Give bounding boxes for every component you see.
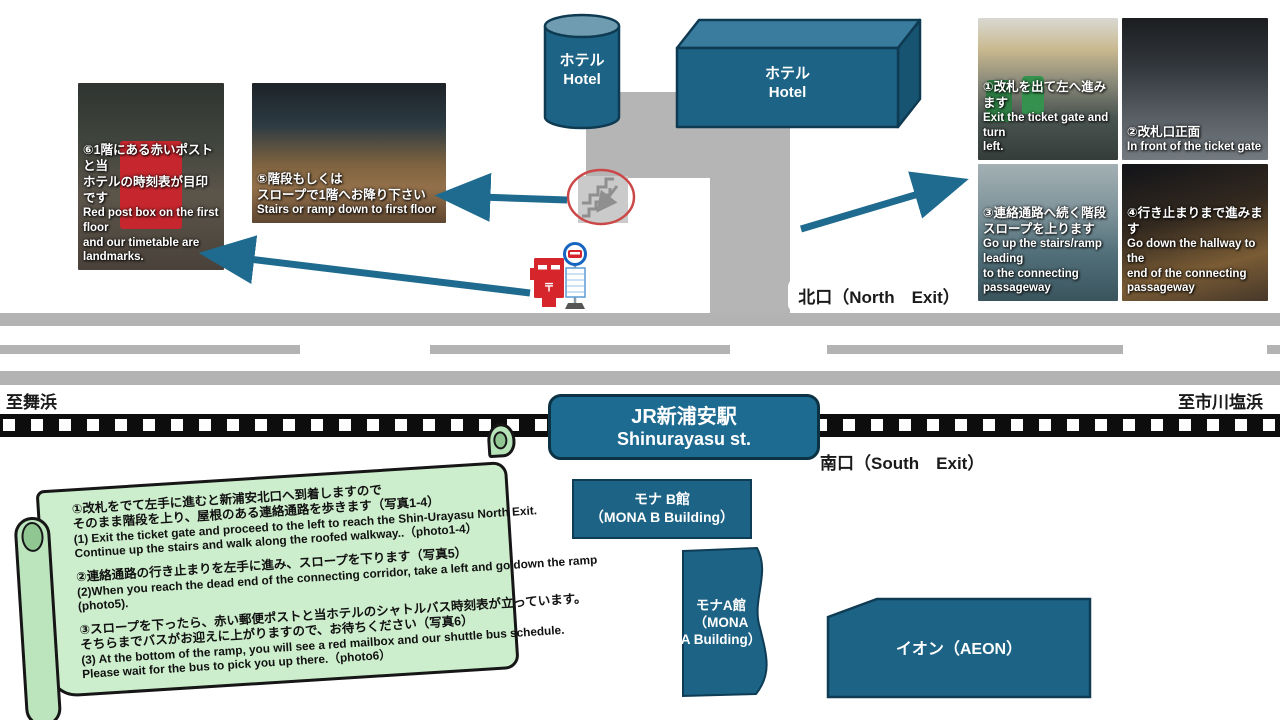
photo-5-caption-jp: ⑤階段もしくは (257, 171, 441, 187)
mona-b-label-en: （MONA B Building） (573, 509, 751, 527)
photo-3-caption-en: Go up the stairs/ramp leading (983, 237, 1113, 266)
photo-4-caption-en: Go down the hallway to the (1127, 237, 1263, 266)
photo-5-caption-jp: スロープで1階へお降り下さい (257, 187, 441, 203)
mona-a-label: モナA館 （MONA A Building） (680, 598, 762, 649)
scroll-text: ①改札をでて左手に進むと新浦安北口へ到着しますので そのまま階段を上り、屋根のあ… (71, 476, 507, 682)
photo-3-stairs-to-passage: ③連絡通路へ続く階段 スロープを上ります Go up the stairs/ra… (978, 164, 1118, 301)
photo-6-caption-jp: ⑥1階にある赤いポストと当 (83, 142, 219, 174)
photo-6-caption-en: landmarks. (83, 250, 219, 265)
photo-2-caption-jp: ②改札口正面 (1127, 124, 1263, 140)
road-shapes (0, 313, 1280, 385)
photo-1-caption-jp: ①改札を出て左へ進みます (983, 79, 1113, 111)
photo-6-caption-en: Red post box on the first floor (83, 206, 219, 235)
south-exit-label: 南口（South Exit） (820, 449, 984, 474)
hotel-tower-label-jp: ホテル (545, 52, 619, 71)
photo-4-hallway: ④行き止まりまで進みます Go down the hallway to the … (1122, 164, 1268, 301)
bus-stop-icon (565, 244, 586, 310)
postbox-icon: 〒 (530, 258, 564, 307)
photo-3-caption-jp: ③連絡通路へ続く階段 (983, 205, 1113, 221)
hotel-block-label: ホテル Hotel (677, 65, 898, 103)
access-map: 〒 至舞浜 至市川塩浜 北口（North Exit） 南口（South Exit… (0, 0, 1280, 720)
photo-5-stairs-ramp: ⑤階段もしくは スロープで1階へお降り下さい Stairs or ramp do… (252, 83, 446, 223)
svg-text:〒: 〒 (544, 281, 555, 294)
directions-scroll: ①改札をでて左手に進むと新浦安北口へ到着しますので そのまま階段を上り、屋根のあ… (8, 436, 536, 720)
mona-b-label: モナ B館 （MONA B Building） (573, 491, 751, 526)
mona-b-label-jp: モナ B館 (573, 491, 751, 509)
photo-4-caption-en: passageway (1127, 281, 1263, 296)
photo-6-red-postbox: ⑥1階にある赤いポストと当 ホテルの時刻表が目印です Red post box … (78, 83, 224, 270)
photo-5-caption-en: Stairs or ramp down to first floor (257, 203, 441, 218)
photo-3-caption-en: passageway (983, 281, 1113, 296)
photo-1-ticket-gate: ①改札を出て左へ進みます Exit the ticket gate and tu… (978, 18, 1118, 160)
photo-3-caption-jp: スロープを上ります (983, 221, 1113, 237)
photo-3-caption-en: to the connecting (983, 267, 1113, 282)
north-exit-label-box: 北口（North Exit） (788, 278, 970, 313)
mona-a-label-en1: （MONA (680, 615, 762, 632)
photo-2-caption-en: In front of the ticket gate (1127, 140, 1263, 155)
hotel-block-label-en: Hotel (677, 84, 898, 103)
hotel-tower-label-en: Hotel (545, 71, 619, 90)
hotel-block-label-jp: ホテル (677, 65, 898, 84)
photo-4-caption-en: end of the connecting (1127, 267, 1263, 282)
mona-a-label-en2: A Building） (680, 632, 762, 649)
photo-2-gate-front: ②改札口正面 In front of the ticket gate (1122, 18, 1268, 160)
station-name-jp: JR新浦安駅 (631, 405, 737, 429)
mona-a-label-jp: モナA館 (680, 598, 762, 615)
north-exit-label: 北口（North Exit） (798, 283, 960, 308)
hotel-tower-label: ホテル Hotel (545, 52, 619, 90)
photo-1-caption-en: Exit the ticket gate and turn (983, 111, 1113, 140)
photo-4-caption-jp: ④行き止まりまで進みます (1127, 205, 1263, 237)
photo-6-caption-en: and our timetable are (83, 236, 219, 251)
station-name-en: Shinurayasu st. (617, 429, 751, 450)
photo-6-caption-jp: ホテルの時刻表が目印です (83, 174, 219, 206)
station-sign: JR新浦安駅 Shinurayasu st. (548, 394, 820, 460)
aeon-label: イオン（AEON） (828, 640, 1090, 660)
scroll-body: ①改札をでて左手に進むと新浦安北口へ到着しますので そのまま階段を上り、屋根のあ… (36, 461, 520, 698)
photo-1-caption-en: left. (983, 140, 1113, 155)
